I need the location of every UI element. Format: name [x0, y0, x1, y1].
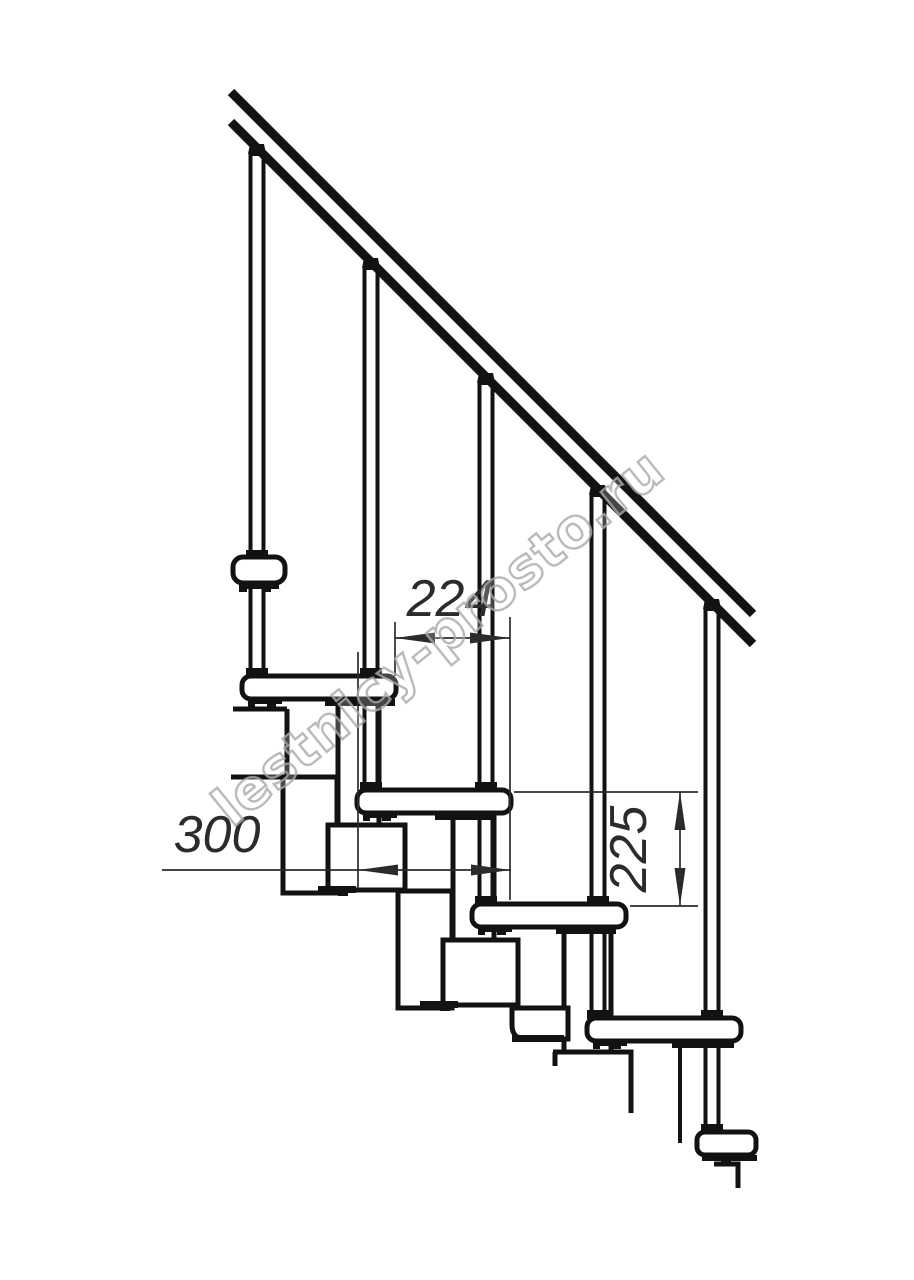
module-square-1 — [328, 825, 405, 890]
tread-4 — [587, 1018, 741, 1041]
dimension-225: 225 — [514, 792, 698, 906]
baluster-1-upper — [251, 154, 264, 563]
tread-3 — [472, 904, 626, 927]
baluster-1-lower — [251, 583, 264, 682]
arrowhead-down — [675, 868, 686, 906]
post-cap — [587, 896, 609, 905]
post-cap — [246, 550, 268, 559]
post-cap — [360, 782, 382, 791]
post-cap — [587, 1010, 609, 1019]
baluster-5-upper — [706, 609, 719, 1024]
bottom-continuation-line — [714, 1164, 738, 1188]
staircase-drawing: 224 300 225 lestnicy-prosto.ru — [0, 0, 914, 1280]
post-cap — [246, 668, 268, 677]
bracket — [512, 1035, 564, 1042]
tread-top-endview — [233, 557, 285, 583]
staircase-drawing-canvas: 224 300 225 lestnicy-prosto.ru — [0, 0, 914, 1280]
post-cap — [475, 896, 497, 905]
bracket — [248, 699, 282, 707]
post-cap — [701, 1124, 723, 1133]
module-square-3-partial — [553, 1052, 631, 1113]
post-cap — [701, 1010, 723, 1019]
connector-box-3 — [512, 1008, 568, 1039]
arrowhead-up — [675, 792, 686, 830]
bracket — [672, 1041, 734, 1048]
baluster-2-upper — [365, 268, 378, 682]
rail-cap — [248, 144, 266, 154]
tread-2 — [357, 790, 511, 813]
dimension-label-225: 225 — [600, 805, 658, 894]
rail-cap — [362, 258, 380, 268]
rail-cap — [477, 373, 495, 383]
rail-cap — [703, 599, 721, 609]
baluster-5-lower — [706, 1041, 719, 1138]
bracket — [435, 813, 495, 820]
baluster-3-lower — [480, 813, 493, 910]
module-square-2 — [443, 940, 518, 1005]
bracket — [556, 927, 616, 934]
baluster-4-lower — [592, 927, 605, 1024]
post-cap — [475, 782, 497, 791]
tread-5-partial — [697, 1132, 756, 1155]
